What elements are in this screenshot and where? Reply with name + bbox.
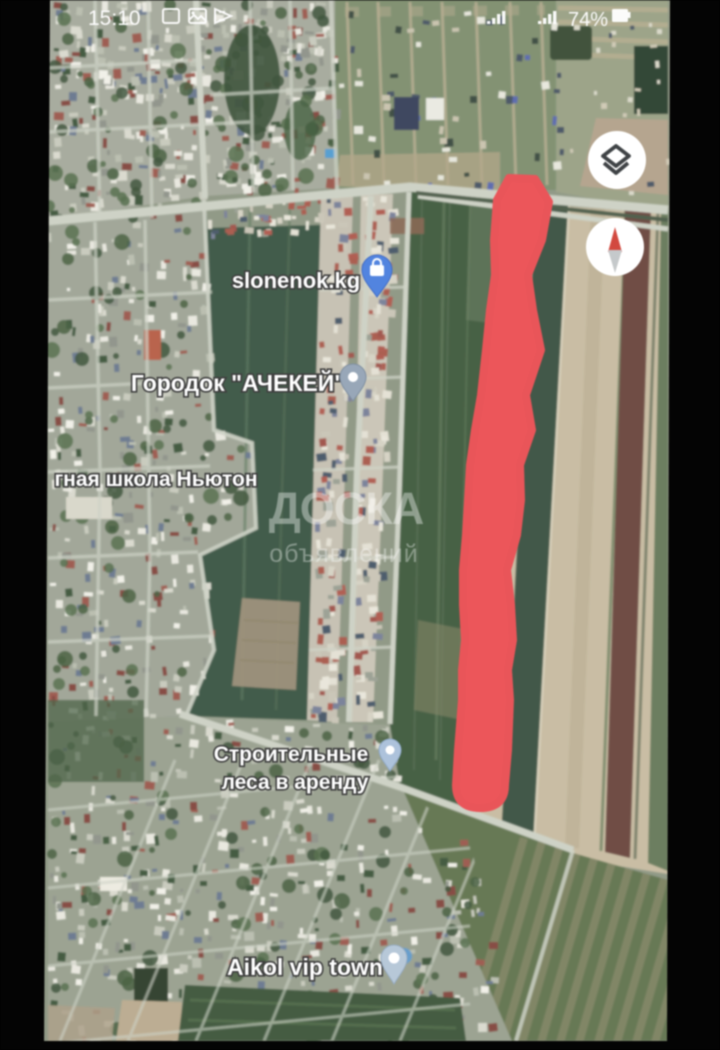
svg-text:Городок "АЧЕКЕЙ": Городок "АЧЕКЕЙ" [131,369,345,396]
svg-text:ДОСКА: ДОСКА [269,483,424,534]
svg-text:15:10: 15:10 [88,7,141,30]
svg-text:леса в аренду: леса в аренду [222,771,369,794]
svg-text:74%: 74% [568,9,608,31]
svg-text:Aikol vip town: Aikol vip town [227,954,383,980]
svg-text:Строительные: Строительные [214,743,369,766]
svg-text:объявлений: объявлений [269,540,419,568]
svg-text:slonenok.kg: slonenok.kg [232,268,360,293]
svg-text:гная школа Ньютон: гная школа Ньютон [54,468,257,491]
